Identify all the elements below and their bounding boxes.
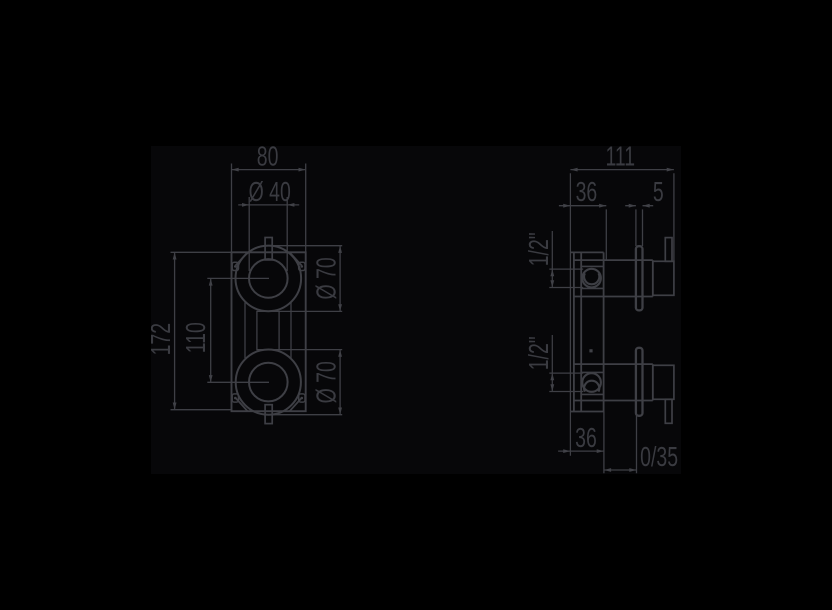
svg-text:5: 5 [653,177,664,208]
svg-text:1/2": 1/2" [524,336,555,370]
svg-text:36: 36 [576,177,598,208]
svg-text:110: 110 [181,322,212,353]
svg-text:111: 111 [606,146,636,172]
svg-text:36: 36 [575,422,597,453]
svg-text:0/35: 0/35 [640,441,678,472]
svg-text:80: 80 [257,146,279,172]
svg-text:Ø 70: Ø 70 [311,361,342,403]
svg-text:Ø 70: Ø 70 [311,257,342,299]
svg-text:1/2": 1/2" [524,232,555,266]
svg-text:Ø 40: Ø 40 [249,176,291,207]
svg-text:172: 172 [151,323,177,355]
